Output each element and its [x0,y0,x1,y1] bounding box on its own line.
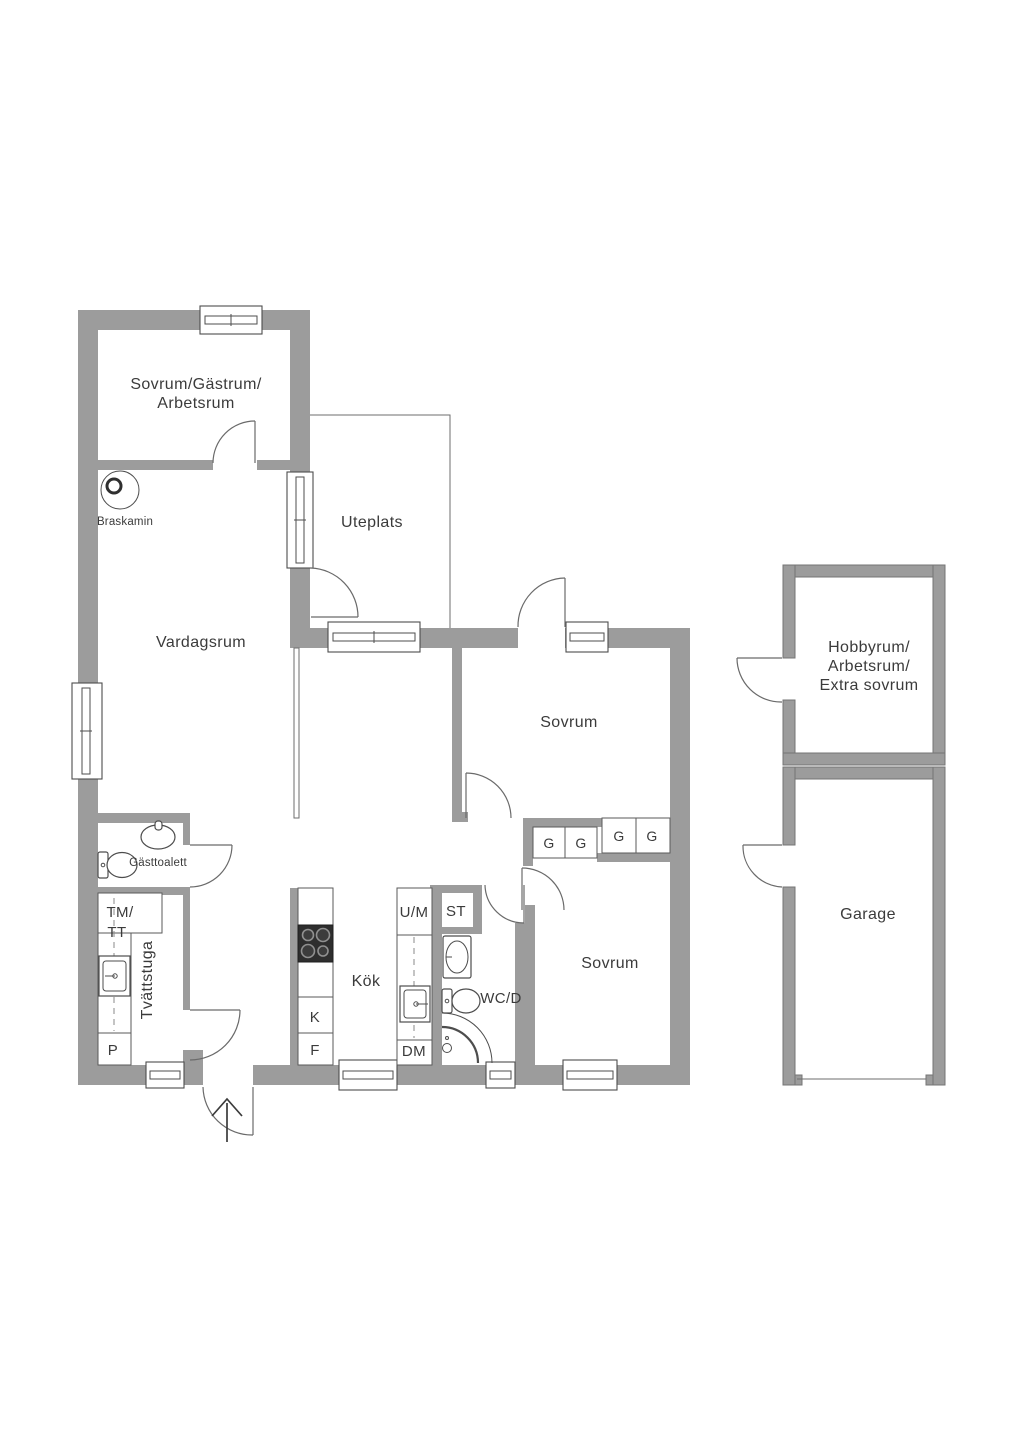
wall-closet-back-lower [597,853,670,862]
door-hobby [737,658,782,702]
room-label-living: Vardagsrum [156,634,246,651]
room-label-garage: Garage [840,906,896,923]
door-openings [203,458,257,1087]
garage-foot-left [795,1075,802,1085]
door-guest-wc [190,845,232,887]
guest-wc-fixtures [98,821,175,878]
wall-right [670,628,690,1085]
stove-icon [298,925,333,962]
room-label-guest-wc: Gästtoalett [129,857,187,869]
label-cleaning-closet: ST [446,903,466,920]
wall-laundry-right [183,895,190,1010]
wall-guestroom-bottom-b [257,460,290,470]
opening-entrance [203,1063,253,1087]
label-wardrobe-3: G [613,828,624,844]
door-guestroom [213,421,255,463]
room-label-hobby-1: Hobbyrum/ [828,639,910,656]
fireplace-symbol [101,471,139,509]
room-label-bedroom-lower: Sovrum [581,955,639,972]
door-bedroom-lower [522,868,564,910]
half-wall-kitchen [294,648,299,818]
hobby-wall-left-a [783,565,795,658]
wall-entry-corner [183,1050,203,1066]
label-wardrobe-2: G [575,835,586,851]
label-wardrobe-4: G [646,828,657,844]
wall-guestroom-bottom-a [98,460,213,470]
wall-closet-back-upper [523,818,602,827]
window [328,622,420,652]
sink-icon [141,821,175,849]
wall-guestwc-top [98,813,190,823]
window [72,683,102,779]
room-label-hobby-3: Extra sovrum [819,677,918,694]
wall-closet-side [523,818,533,866]
room-label-hobby-2: Arbetsrum/ [828,658,910,675]
kitchen-counter-left [298,888,333,1065]
wall-bedroom-top-a [452,628,518,648]
window [287,472,313,568]
kitchen-sink-icon [400,986,430,1022]
wall-guestroom-right [290,310,310,630]
label-pantry: P [108,1042,118,1059]
room-label-shower-wc: WC/D [480,990,522,1007]
hobby-wall-top [783,565,945,577]
garage-foot-right [926,1075,933,1085]
door-bedroom-patio [518,578,565,627]
window [146,1062,184,1088]
window [486,1062,515,1088]
label-oven-microwave: U/M [400,904,429,921]
hobby-wall-right [933,565,945,765]
label-washer: TM/ [106,904,133,921]
wc-sink-icon [443,936,471,978]
garage-wall-left-a [783,767,795,845]
window [200,306,262,334]
floorplan-svg: Sovrum/Gästrum/ Arbetsrum Braskamin Utep… [0,0,1024,1448]
window [563,1060,617,1090]
label-wardrobe-1: G [543,835,554,851]
wall-kitchen-divider-lower [290,888,298,1065]
room-label-kitchen: Kök [352,973,381,990]
window [566,622,608,652]
wall-st-bottom [430,927,480,934]
door-bedroom-upper [466,773,511,818]
room-label-guest-bedroom-1: Sovrum/Gästrum/ [130,376,262,393]
garage-wall-right [933,767,945,1085]
wall-st-right [473,885,482,934]
floorplan-page: Sovrum/Gästrum/ Arbetsrum Braskamin Utep… [0,0,1024,1448]
wall-bedroom-lower-left [525,905,535,1065]
room-label-patio: Uteplats [341,514,403,531]
wall-hall-bedroom-divider [452,648,462,820]
fireplace-label: Braskamin [97,516,153,528]
wall-guestwc-right [183,813,190,845]
hobby-wall-bottom [783,753,945,765]
label-fridge: K [310,1009,320,1026]
door-patio [311,568,358,617]
wall-top-left [78,310,310,330]
opening-guestroom [213,458,257,472]
room-label-bedroom-upper: Sovrum [540,714,598,731]
label-dryer: TT [107,924,126,941]
garage-wall-top [783,767,945,779]
room-label-laundry: Tvättstuga [139,941,156,1020]
wall-kitchen-wc [432,885,442,1065]
door-shower-wc [485,885,524,923]
shower-icon [442,1013,492,1063]
garage-wall-left-b [783,887,795,1085]
door-entrance [203,1087,253,1135]
wc-toilet-icon [442,989,480,1013]
label-dishwasher: DM [402,1043,426,1060]
door-garage-side [743,845,782,887]
room-label-guest-bedroom-2: Arbetsrum [157,395,234,412]
laundry-sink-icon [99,956,130,996]
label-freezer: F [310,1042,320,1059]
window [339,1060,397,1090]
